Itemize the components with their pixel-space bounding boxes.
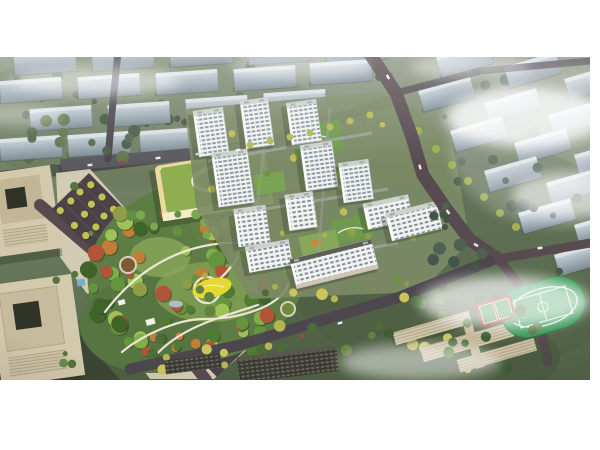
- tree: [186, 305, 195, 314]
- rendering-scene: [0, 57, 590, 380]
- tree: [173, 343, 181, 351]
- haze: [0, 57, 590, 167]
- tree: [173, 226, 183, 236]
- flower-ring: [281, 302, 295, 316]
- tree: [442, 202, 450, 210]
- tree: [477, 248, 488, 259]
- tree: [272, 284, 278, 290]
- tree: [162, 316, 171, 325]
- tree: [256, 180, 262, 186]
- tree: [472, 261, 480, 269]
- tree: [528, 326, 537, 335]
- tree: [174, 211, 181, 218]
- pond: [169, 301, 183, 308]
- avenue-tree: [57, 207, 64, 214]
- tree: [80, 261, 96, 277]
- tree: [399, 293, 409, 303]
- tree: [264, 171, 270, 177]
- tree: [204, 305, 215, 316]
- tree: [203, 231, 211, 239]
- tree: [375, 321, 383, 329]
- tree: [113, 206, 128, 221]
- tree: [433, 242, 446, 255]
- tree: [394, 275, 402, 283]
- tree: [147, 348, 158, 359]
- tree: [133, 222, 147, 236]
- flower-ring: [120, 257, 136, 273]
- tree: [331, 295, 338, 302]
- tree: [202, 344, 212, 354]
- tree: [265, 342, 273, 350]
- tree: [182, 280, 192, 290]
- tree: [481, 332, 491, 342]
- tree: [555, 268, 563, 276]
- avenue-tree: [87, 181, 94, 188]
- tree: [236, 317, 249, 330]
- tree: [207, 329, 220, 342]
- tree: [448, 256, 460, 268]
- tree: [316, 288, 328, 300]
- tree: [262, 289, 269, 296]
- tree: [409, 296, 421, 308]
- tree: [289, 288, 297, 296]
- tree: [365, 233, 370, 238]
- tree: [126, 210, 137, 221]
- tree: [59, 359, 68, 368]
- tree: [191, 339, 201, 349]
- tree: [429, 211, 438, 220]
- tree: [52, 276, 60, 284]
- tree: [260, 308, 275, 323]
- tree: [68, 360, 77, 369]
- tree: [112, 316, 127, 331]
- tree: [443, 217, 449, 223]
- tree: [442, 224, 448, 230]
- tree: [293, 249, 298, 254]
- tree: [221, 362, 228, 369]
- tree: [461, 339, 469, 347]
- tree: [368, 332, 375, 339]
- tree: [88, 283, 98, 293]
- avenue-tree: [92, 223, 99, 230]
- avenue-tree: [67, 197, 74, 204]
- tree: [340, 208, 347, 215]
- tree: [404, 281, 409, 286]
- tree: [105, 229, 117, 241]
- tree: [427, 254, 438, 265]
- tree: [347, 228, 355, 236]
- page-background: [0, 0, 600, 450]
- tree: [307, 323, 317, 333]
- avenue-tree: [82, 232, 89, 239]
- tree: [101, 266, 113, 278]
- tree: [204, 292, 214, 302]
- avenue-tree: [98, 193, 105, 200]
- tree: [70, 182, 79, 191]
- avenue-tree: [100, 212, 107, 219]
- tree: [196, 285, 204, 293]
- tree: [500, 361, 512, 373]
- tree: [155, 334, 165, 344]
- aerial-rendering: [0, 57, 590, 380]
- avenue-tree: [76, 188, 83, 195]
- tree: [136, 210, 145, 219]
- tree: [63, 351, 68, 356]
- tree: [133, 282, 147, 296]
- canopy: [77, 278, 86, 286]
- tree: [150, 222, 158, 230]
- tree: [322, 233, 327, 238]
- avenue-tree: [71, 222, 78, 229]
- tree: [88, 245, 104, 261]
- tree: [454, 239, 467, 252]
- tree: [155, 286, 171, 302]
- tree: [274, 320, 286, 332]
- tree: [202, 273, 208, 279]
- tree: [220, 349, 228, 357]
- tree: [71, 271, 78, 278]
- avenue-tree: [88, 201, 95, 208]
- tree: [88, 231, 93, 236]
- tree: [384, 328, 394, 338]
- avenue-tree: [81, 211, 88, 218]
